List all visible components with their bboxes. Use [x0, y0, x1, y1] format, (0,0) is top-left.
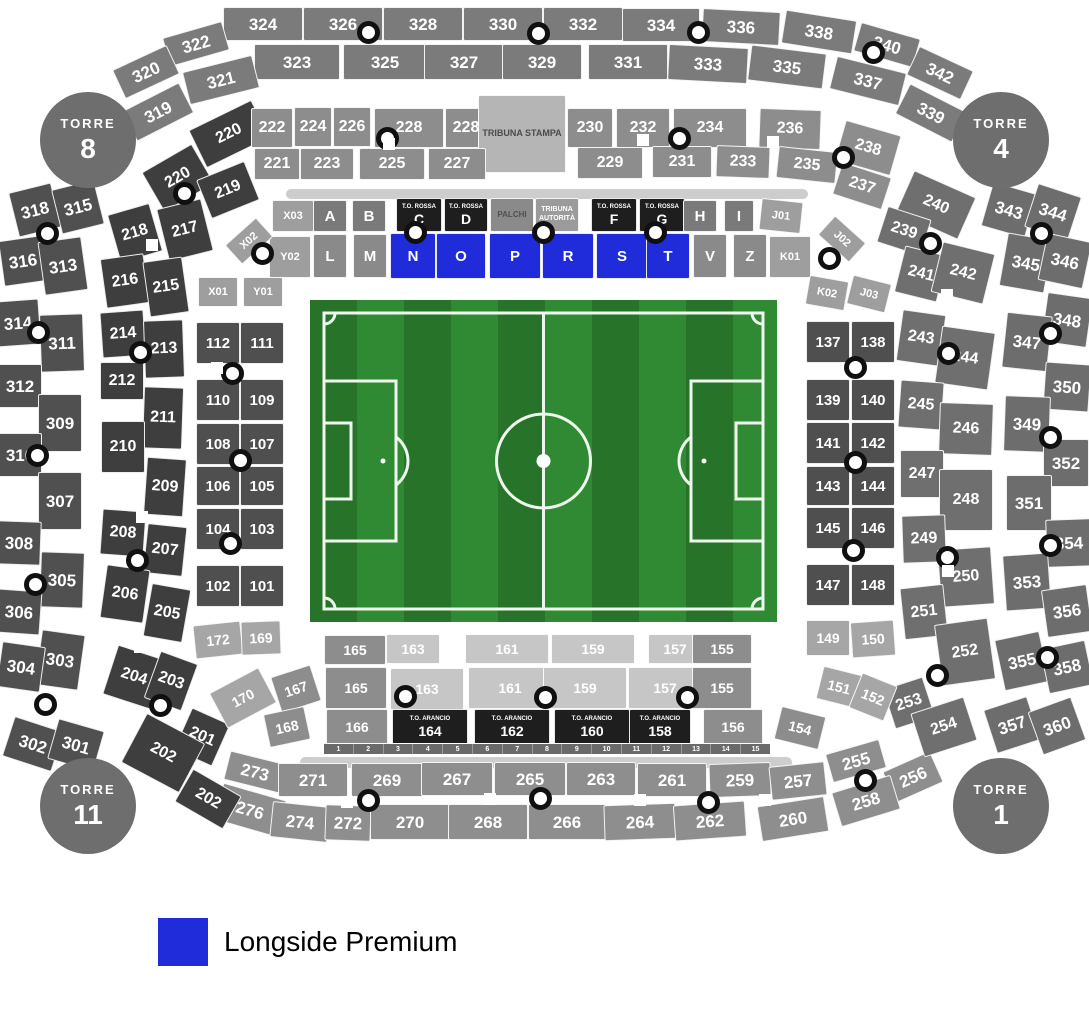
section-137[interactable]: 137 [806, 321, 850, 363]
section-label: 226 [339, 119, 366, 135]
section-label: 252 [951, 642, 980, 662]
vomitory-mark [941, 289, 953, 301]
section-label: 268 [474, 814, 502, 831]
section-label: 164 [418, 724, 441, 738]
section-268[interactable]: 268 [448, 804, 528, 840]
gate-marker [221, 362, 244, 385]
section-label: 312 [6, 378, 34, 395]
section-label: 108 [205, 437, 230, 452]
section-112[interactable]: 112 [196, 322, 240, 364]
section-161[interactable]: 161 [465, 634, 549, 664]
row-number: 12 [652, 744, 682, 754]
section-222[interactable]: 222 [251, 108, 293, 148]
section-label: 229 [597, 155, 624, 171]
section-312[interactable]: 312 [0, 364, 42, 408]
row-number-strip: 123456789101112131415 [323, 743, 771, 755]
section-label: 246 [952, 421, 979, 438]
section-141[interactable]: 141 [806, 422, 850, 464]
section-label: J03 [859, 286, 879, 301]
section-307[interactable]: 307 [38, 472, 82, 530]
gate-marker [926, 664, 949, 687]
section-label: 271 [299, 772, 327, 789]
row-number: 15 [741, 744, 770, 754]
section-label: 202 [192, 785, 223, 812]
section-a[interactable]: A [313, 200, 347, 232]
section-328[interactable]: 328 [383, 7, 463, 41]
section-155[interactable]: 155 [692, 634, 752, 664]
section-257[interactable]: 257 [768, 761, 827, 801]
vomitory-mark [634, 794, 646, 806]
section-label: 330 [489, 16, 517, 33]
section-label: 318 [19, 198, 51, 221]
section-166[interactable]: 166 [326, 709, 388, 745]
gate-marker [937, 342, 960, 365]
section-139[interactable]: 139 [806, 379, 850, 421]
section-158[interactable]: T.O. ARANCIO158 [629, 709, 691, 745]
section-label: K02 [816, 286, 838, 300]
section-360[interactable]: 360 [1028, 697, 1087, 756]
row-number: 7 [503, 744, 533, 754]
section-label: N [408, 249, 419, 264]
section-332[interactable]: 332 [543, 7, 623, 41]
gate-marker [129, 341, 152, 364]
vomitory-mark [134, 641, 146, 653]
section-229[interactable]: 229 [577, 147, 643, 179]
section-235[interactable]: 235 [775, 146, 838, 184]
section-label: 144 [860, 479, 885, 494]
section-label: 347 [1012, 332, 1042, 352]
section-label: 309 [46, 415, 74, 432]
vomitory-mark [341, 796, 353, 808]
section-270[interactable]: 270 [370, 804, 450, 840]
gate-marker [818, 247, 841, 270]
tower-name: TORRE [60, 782, 115, 797]
section-label: 245 [907, 396, 935, 414]
section-325[interactable]: 325 [343, 44, 427, 80]
section-f[interactable]: T.O. ROSSAF [591, 198, 637, 232]
section-label: 212 [109, 373, 136, 389]
section-233[interactable]: 233 [715, 145, 770, 179]
section-label: 239 [889, 219, 919, 242]
section-label: 145 [815, 521, 840, 536]
section-label: 210 [110, 439, 137, 455]
section-265[interactable]: 265 [494, 762, 566, 796]
section-329[interactable]: 329 [502, 44, 582, 80]
section-271[interactable]: 271 [278, 763, 348, 797]
section-224[interactable]: 224 [294, 107, 332, 147]
legend-swatch [158, 918, 208, 966]
section-306[interactable]: 306 [0, 589, 42, 636]
section-label: 233 [729, 154, 756, 171]
section-label: 159 [573, 681, 596, 695]
section-245[interactable]: 245 [897, 380, 944, 431]
section-label: 260 [778, 808, 809, 829]
section-h[interactable]: H [683, 200, 717, 232]
gate-marker [219, 532, 242, 555]
section-label: 149 [816, 631, 839, 645]
gate-marker [832, 146, 855, 169]
section-label: O [455, 249, 467, 264]
gate-marker [24, 573, 47, 596]
section-category-label: T.O. ROSSA [645, 204, 679, 210]
section-label: 211 [150, 410, 176, 427]
section-label: 157 [653, 681, 676, 695]
section-label: 304 [6, 657, 36, 678]
vomitory-mark [942, 565, 954, 577]
section-label: 273 [239, 760, 271, 783]
gate-marker [149, 694, 172, 717]
section-274[interactable]: 274 [269, 801, 330, 843]
gate-marker [1039, 322, 1062, 345]
section-label: 101 [249, 579, 274, 594]
section-label: 236 [776, 121, 803, 138]
section-261[interactable]: 261 [637, 763, 707, 797]
section-k01[interactable]: K01 [769, 236, 811, 278]
section-label: 355 [1006, 650, 1037, 673]
section-label: J01 [771, 210, 790, 223]
section-label: 205 [152, 603, 181, 623]
gate-marker [394, 685, 417, 708]
section-150[interactable]: 150 [850, 620, 896, 659]
section-label: 315 [62, 195, 94, 218]
legend: Longside Premium [158, 918, 457, 966]
section-label: 248 [953, 492, 980, 508]
section-label: 256 [897, 763, 930, 790]
section-label: R [563, 249, 574, 264]
section-label: 339 [914, 99, 947, 127]
section-label: 243 [907, 328, 936, 348]
section-147[interactable]: 147 [806, 564, 850, 606]
torre-11: TORRE11 [40, 758, 136, 854]
section-label: 161 [495, 642, 518, 656]
gate-marker [357, 21, 380, 44]
section-label: 235 [793, 156, 821, 175]
section-label: 319 [141, 98, 174, 126]
section-label: 307 [46, 493, 74, 510]
section-label: 216 [111, 271, 140, 291]
section-j01[interactable]: J01 [758, 198, 803, 234]
gate-marker [1039, 426, 1062, 449]
section-label: 224 [300, 119, 327, 135]
vomitory-mark [767, 136, 779, 148]
section-label: 165 [343, 643, 366, 657]
section-227[interactable]: 227 [428, 148, 486, 180]
section-label: 311 [48, 334, 76, 352]
gate-marker [676, 686, 699, 709]
gate-marker [26, 444, 49, 467]
section-label: 152 [860, 686, 887, 708]
section-105[interactable]: 105 [240, 466, 284, 506]
section-162[interactable]: T.O. ARANCIO162 [474, 709, 550, 745]
section-103[interactable]: 103 [240, 508, 284, 550]
section-label: 238 [853, 137, 883, 160]
section-label: 346 [1049, 250, 1080, 273]
section-label: 163 [401, 642, 424, 656]
section-label: 161 [498, 681, 521, 695]
section-169[interactable]: 169 [240, 620, 281, 655]
gate-marker [1036, 646, 1059, 669]
section-230[interactable]: 230 [567, 108, 613, 148]
section-163[interactable]: 163 [386, 634, 440, 664]
section-label: 213 [150, 341, 177, 358]
section-327[interactable]: 327 [424, 44, 504, 80]
section-label: 265 [516, 771, 544, 788]
section-m[interactable]: M [353, 234, 387, 278]
section-148[interactable]: 148 [851, 564, 895, 606]
section-label: 209 [151, 478, 179, 496]
section-167[interactable]: 167 [270, 664, 322, 713]
section-156[interactable]: 156 [703, 709, 763, 745]
section-321[interactable]: 321 [182, 55, 260, 105]
section-category-label: T.O. ARANCIO [410, 716, 450, 722]
section-label: 313 [48, 256, 78, 277]
vomitory-mark [211, 362, 223, 374]
section-label: 234 [697, 120, 724, 136]
section-101[interactable]: 101 [240, 565, 284, 607]
section-110[interactable]: 110 [196, 379, 240, 421]
section-210[interactable]: 210 [101, 421, 145, 473]
section-label: X01 [208, 287, 228, 298]
section-324[interactable]: 324 [223, 7, 303, 41]
section-label: 156 [721, 720, 744, 734]
section-106[interactable]: 106 [196, 466, 240, 506]
section-label: 250 [952, 568, 980, 586]
section-160[interactable]: T.O. ARANCIO160 [554, 709, 630, 745]
vomitory-mark [637, 134, 649, 146]
section-j03[interactable]: J03 [846, 275, 892, 314]
section-y02[interactable]: Y02 [269, 236, 311, 278]
section-206[interactable]: 206 [99, 564, 150, 624]
section-category-label: T.O. ROSSA [597, 204, 631, 210]
section-label: 267 [443, 771, 471, 788]
section-label: 228 [453, 120, 480, 136]
section-246[interactable]: 246 [938, 402, 994, 456]
section-149[interactable]: 149 [806, 620, 850, 656]
section-231[interactable]: 231 [652, 146, 712, 178]
row-number: 13 [682, 744, 712, 754]
section-207[interactable]: 207 [142, 523, 187, 577]
section-168[interactable]: 168 [263, 706, 311, 748]
section-159[interactable]: 159 [551, 634, 635, 664]
section-label: 350 [1052, 378, 1081, 397]
section-333[interactable]: 333 [667, 44, 749, 84]
section-label: 331 [614, 54, 642, 71]
section-140[interactable]: 140 [851, 379, 895, 421]
section-label: 142 [860, 436, 885, 451]
section-label: 249 [910, 531, 937, 548]
section-label: 214 [109, 325, 137, 343]
section-336[interactable]: 336 [701, 8, 781, 46]
section-164[interactable]: T.O. ARANCIO164 [392, 709, 468, 745]
section-label: 172 [206, 632, 231, 648]
section-label: 158 [648, 724, 671, 738]
section-l[interactable]: L [313, 234, 347, 278]
tower-number: 11 [73, 799, 103, 831]
section-tribuna-stampa[interactable]: TRIBUNA STAMPA [478, 95, 566, 173]
gate-marker [844, 356, 867, 379]
section-label: 221 [264, 156, 291, 172]
section-label: TRIBUNA STAMPA [482, 128, 561, 139]
section-label: 349 [1013, 415, 1042, 433]
section-102[interactable]: 102 [196, 565, 240, 607]
vomitory-mark [146, 239, 158, 251]
section-label: 230 [577, 120, 604, 136]
section-338[interactable]: 338 [781, 10, 857, 55]
section-label: PALCHI [497, 211, 526, 219]
section-263[interactable]: 263 [566, 762, 636, 796]
section-label: 160 [580, 724, 603, 738]
section-109[interactable]: 109 [240, 379, 284, 421]
section-label: 159 [581, 642, 604, 656]
section-label: 254 [929, 715, 959, 738]
section-211[interactable]: 211 [142, 386, 184, 449]
section-label: 353 [1012, 573, 1041, 592]
section-165[interactable]: 165 [324, 635, 386, 665]
section-335[interactable]: 335 [747, 45, 827, 90]
section-205[interactable]: 205 [143, 583, 192, 643]
section-label: 327 [450, 54, 478, 71]
section-category-label: T.O. ROSSA [402, 204, 436, 210]
torre-8: TORRE8 [40, 92, 136, 188]
section-label: 316 [8, 251, 38, 272]
section-z[interactable]: Z [733, 234, 767, 278]
section-259[interactable]: 259 [708, 762, 771, 798]
row-number: 10 [592, 744, 622, 754]
section-label: 111 [250, 336, 273, 351]
section-y01[interactable]: Y01 [243, 277, 283, 307]
section-b[interactable]: B [352, 200, 386, 232]
section-label: 109 [249, 393, 274, 408]
section-d[interactable]: T.O. ROSSAD [444, 198, 488, 232]
section-label: 332 [569, 16, 597, 33]
section-x03[interactable]: X03 [272, 200, 314, 232]
section-palchi[interactable]: PALCHI [490, 198, 534, 232]
section-248[interactable]: 248 [939, 469, 993, 531]
section-223[interactable]: 223 [300, 148, 354, 180]
torre-1: TORRE1 [953, 758, 1049, 854]
section-label: I [737, 209, 741, 224]
section-x01[interactable]: X01 [198, 277, 238, 307]
section-111[interactable]: 111 [240, 322, 284, 364]
section-313[interactable]: 313 [37, 236, 88, 296]
section-label: 274 [285, 812, 315, 832]
section-label: 325 [371, 54, 399, 71]
section-label: 222 [259, 120, 286, 136]
section-315[interactable]: 315 [51, 179, 105, 234]
section-i[interactable]: I [724, 200, 754, 232]
section-label: 270 [396, 814, 424, 831]
gate-marker [842, 539, 865, 562]
section-155[interactable]: 155 [692, 667, 752, 709]
gate-marker [668, 127, 691, 150]
section-label: 163 [415, 682, 438, 696]
row-number: 4 [413, 744, 443, 754]
section-label: T [663, 249, 672, 264]
section-label: 110 [206, 393, 230, 408]
section-311[interactable]: 311 [39, 313, 85, 373]
section-209[interactable]: 209 [143, 457, 187, 518]
section-label: 165 [344, 681, 367, 695]
section-label: 338 [804, 21, 835, 42]
section-label: 148 [860, 578, 885, 593]
section-308[interactable]: 308 [0, 520, 42, 566]
section-label: 225 [379, 156, 406, 172]
section-label: A [325, 209, 336, 224]
section-label: 326 [329, 16, 357, 33]
section-143[interactable]: 143 [806, 466, 850, 506]
section-337[interactable]: 337 [829, 56, 907, 106]
gate-marker [529, 787, 552, 810]
section-212[interactable]: 212 [100, 362, 144, 400]
gate-marker [357, 789, 380, 812]
tower-number: 4 [993, 133, 1009, 165]
section-v[interactable]: V [693, 234, 727, 278]
section-331[interactable]: 331 [588, 44, 668, 80]
section-217[interactable]: 217 [156, 198, 214, 262]
section-323[interactable]: 323 [254, 44, 340, 80]
section-221[interactable]: 221 [254, 148, 300, 180]
section-o[interactable]: O [436, 233, 486, 279]
section-label: 342 [924, 59, 957, 86]
section-225[interactable]: 225 [359, 148, 425, 180]
section-k02[interactable]: K02 [805, 275, 850, 311]
tower-name: TORRE [973, 116, 1028, 131]
section-label: 337 [852, 69, 884, 92]
section-309[interactable]: 309 [38, 394, 82, 452]
section-label: 345 [1011, 252, 1042, 274]
section-label: 228 [396, 120, 423, 136]
section-267[interactable]: 267 [421, 762, 493, 796]
section-154[interactable]: 154 [774, 706, 827, 750]
section-label: 202 [147, 740, 178, 767]
section-label: 215 [152, 277, 181, 297]
gate-marker [644, 221, 667, 244]
section-label: 262 [695, 812, 724, 831]
section-label: 169 [249, 631, 273, 646]
section-label: 240 [921, 192, 952, 217]
section-label: 241 [906, 263, 936, 285]
row-number: 8 [533, 744, 563, 754]
section-p[interactable]: P [489, 233, 541, 279]
section-label: P [510, 249, 520, 264]
gate-marker [36, 222, 59, 245]
section-label: Z [745, 249, 754, 264]
section-304[interactable]: 304 [0, 641, 46, 693]
section-356[interactable]: 356 [1041, 584, 1089, 638]
section-264[interactable]: 264 [603, 803, 676, 841]
section-label: V [705, 249, 715, 264]
pitch [310, 300, 777, 622]
section-s[interactable]: S [596, 233, 648, 279]
section-172[interactable]: 172 [192, 621, 243, 660]
section-label: 166 [345, 720, 368, 734]
section-label: 264 [626, 813, 655, 831]
section-label: 302 [17, 732, 49, 757]
tower-name: TORRE [973, 782, 1028, 797]
section-label: 263 [587, 771, 615, 788]
section-label: 329 [528, 54, 556, 71]
row-number: 2 [354, 744, 384, 754]
vomitory-mark [759, 794, 771, 806]
section-category-label: T.O. ARANCIO [492, 716, 532, 722]
gate-marker [919, 232, 942, 255]
section-226[interactable]: 226 [333, 107, 371, 147]
section-label: L [325, 249, 334, 264]
section-label: 139 [815, 393, 840, 408]
section-165[interactable]: 165 [325, 667, 387, 709]
section-215[interactable]: 215 [142, 256, 189, 317]
section-247[interactable]: 247 [900, 450, 944, 498]
